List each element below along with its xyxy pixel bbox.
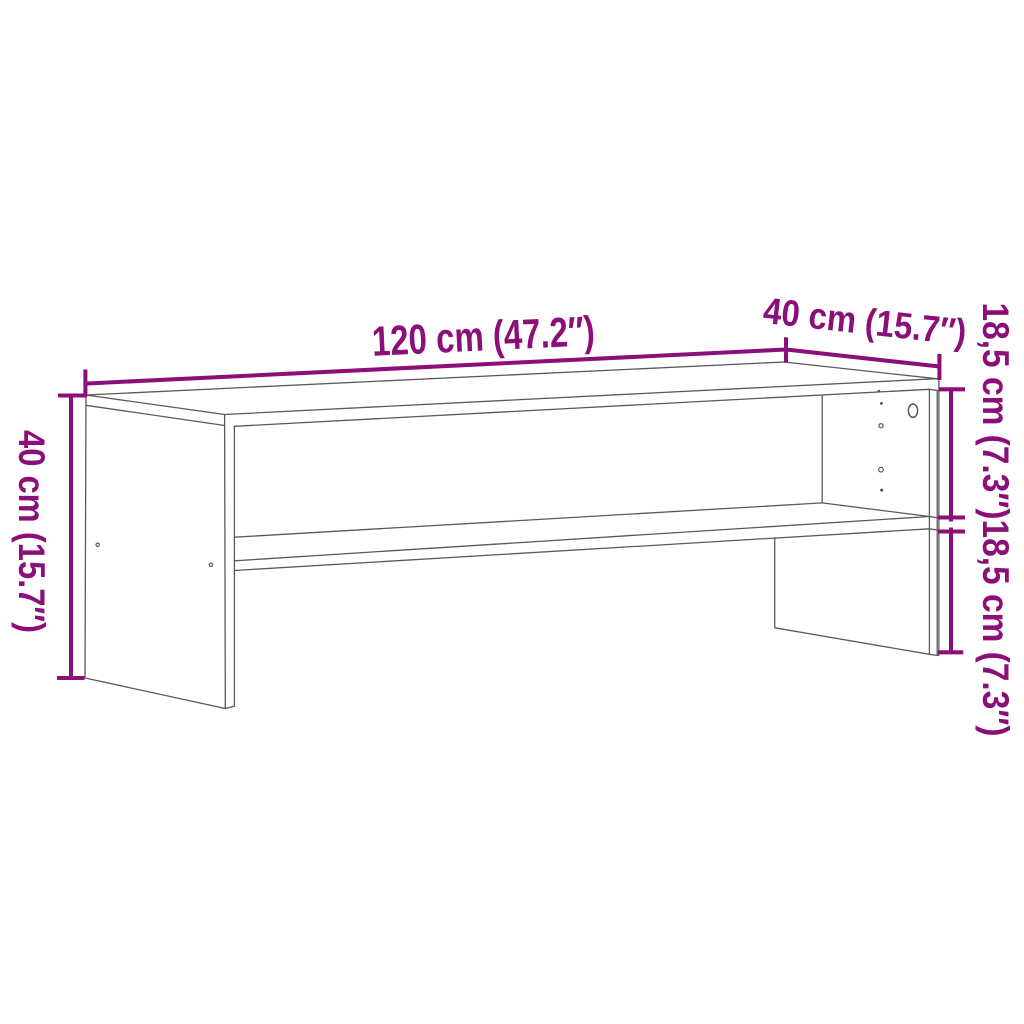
svg-text:40 cm (15.7″): 40 cm (15.7″) (11, 430, 52, 633)
svg-text:18,5 cm (7.3″)18,5 cm (7.3″): 18,5 cm (7.3″)18,5 cm (7.3″) (975, 303, 1016, 737)
